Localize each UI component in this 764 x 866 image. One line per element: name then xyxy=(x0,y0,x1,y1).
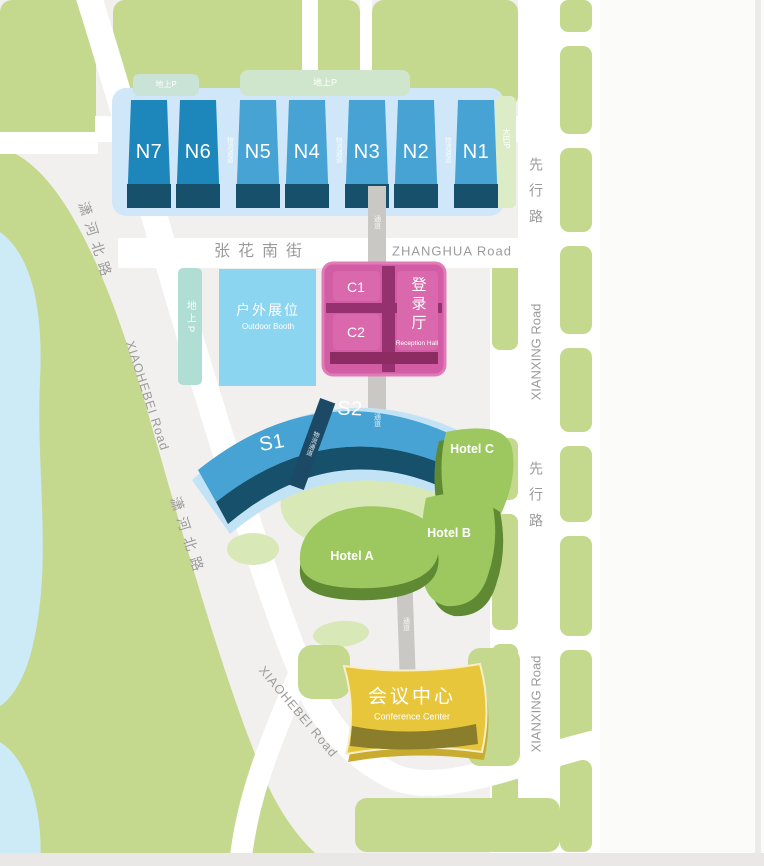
hotel-b-label: Hotel B xyxy=(427,527,471,540)
right-edge-strip xyxy=(755,0,761,866)
logistics-corridor-label: 物流通道 xyxy=(443,137,450,163)
ground-parking-strip-label: 地上P xyxy=(185,301,195,335)
hall-s1-label: S1 xyxy=(258,431,287,455)
outdoor-booth-label-zh: 户外展位 xyxy=(236,303,300,317)
corridor-label: 通道 xyxy=(374,215,381,229)
conference-center-label-en: Conference Center xyxy=(374,713,450,722)
hall-c1-label: C1 xyxy=(347,280,365,294)
logistics-corridor-label: 物流通道 xyxy=(334,137,341,163)
xianxing-road-label-en: XIANXING Road xyxy=(530,304,543,401)
xianxing-road-label-zh: 先行路 xyxy=(529,461,543,539)
xianxing-road-label-en: XIANXING Road xyxy=(530,656,543,753)
bottom-edge-strip xyxy=(0,853,764,866)
conference-center-label-zh: 会议中心 xyxy=(368,688,456,707)
ground-parking-label-wide: 地上P xyxy=(313,79,337,88)
exhibition-center-map-page: N7 N6 N5 N4 N3 N2 N1 物流通道 物流通道 物流通道 地上P … xyxy=(0,0,764,866)
reception-hall-label-en: Reception Hall xyxy=(396,341,438,348)
hall-s2-label: S2 xyxy=(337,398,363,419)
hall-c2-label: C2 xyxy=(347,325,365,339)
hall-n5-label: N5 xyxy=(245,142,272,162)
logistics-corridor-label: 物流通道 xyxy=(225,137,232,163)
corridor-label: 通道 xyxy=(403,617,410,631)
hall-n4-label: N4 xyxy=(294,142,321,162)
hall-n7-label: N7 xyxy=(136,142,163,162)
zhanghua-road-label-en: ZHANGHUA Road xyxy=(392,245,512,258)
bus-parking-label: 大巴P xyxy=(502,127,510,148)
reception-hall-label-zh: 登录厅 xyxy=(411,277,426,334)
hall-n1-label: N1 xyxy=(463,142,490,162)
hall-n2-label: N2 xyxy=(403,142,430,162)
hotel-a-label: Hotel A xyxy=(330,550,373,563)
zhanghua-road-label-zh: 张花南街 xyxy=(214,244,310,260)
corridor-label: 通道 xyxy=(374,413,381,427)
hotel-c-label: Hotel C xyxy=(450,443,494,456)
stats-sidebar: N 100,000平方米 室内面积 INDOOR EXHIBITION AREA… xyxy=(600,0,760,866)
xianxing-road-label-zh: 先行路 xyxy=(529,157,543,235)
outdoor-booth-label-en: Outdoor Booth xyxy=(242,323,294,331)
hall-n3-label: N3 xyxy=(354,142,381,162)
bus-parking-strip xyxy=(496,96,516,208)
reception-block xyxy=(323,263,445,375)
ground-parking-label-small: 地上P xyxy=(155,81,176,89)
hall-n6-label: N6 xyxy=(185,142,212,162)
